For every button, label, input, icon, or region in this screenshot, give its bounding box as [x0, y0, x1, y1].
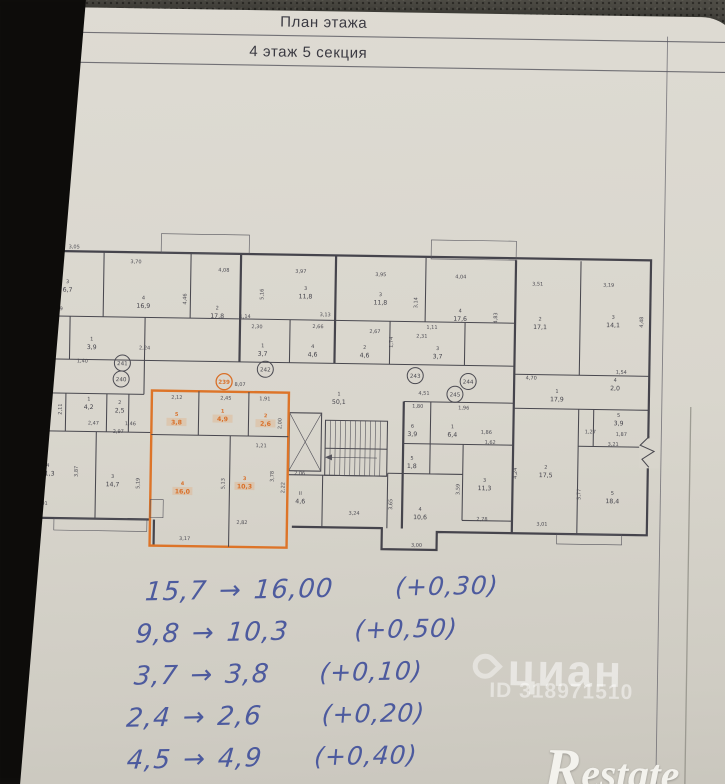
dimension-label: 1,98	[38, 419, 49, 425]
dimension-label: 1,96	[458, 405, 469, 411]
dimension-label: 2,24	[139, 345, 150, 351]
room-number: 3	[483, 478, 486, 484]
room-number: 6	[411, 424, 414, 430]
dimension-label: 1,91	[259, 396, 270, 402]
dimension-label: 3,97	[295, 269, 306, 275]
note-row: 4,5 → 4,9 (+0,40)	[121, 738, 555, 784]
dimension-label: 2,67	[369, 329, 380, 335]
document-border-line	[655, 37, 667, 784]
dimension-label: 2,45	[220, 396, 231, 402]
room-area: 6,7	[63, 287, 73, 294]
room-number: 3	[66, 279, 69, 285]
dimension-label: 1,14	[240, 314, 251, 320]
elevator-cross	[289, 413, 322, 471]
room-number: 3	[612, 315, 615, 321]
room-area: 3,9	[87, 344, 97, 351]
room-number: 4	[142, 295, 145, 301]
dimension-label: 1,61	[41, 368, 52, 374]
room-number: 4	[418, 507, 421, 513]
dimension-label: 3,87	[74, 466, 80, 477]
room-number: 3	[304, 286, 307, 292]
dimension-label: 3,17	[179, 536, 190, 542]
room-area: 3,9	[614, 420, 624, 427]
dimension-label: 3,19	[603, 283, 614, 289]
note-to: 16,00	[253, 574, 335, 606]
dimension-label: 1,80	[412, 404, 423, 410]
room-area: 4,2	[84, 404, 94, 411]
room-number: 2	[264, 413, 268, 419]
room-area: 16,0	[175, 488, 191, 495]
room-area: 2,0	[610, 385, 620, 392]
dimension-label: 4,70	[526, 375, 537, 381]
page-edge-line	[684, 407, 690, 784]
dimension-label: 3,51	[532, 281, 543, 287]
room-area: 17,9	[550, 396, 564, 403]
dimension-label: 1,87	[616, 432, 627, 438]
restate-rest: estate	[581, 751, 680, 784]
room-number: 4	[181, 481, 185, 487]
wall-break-patch	[639, 438, 659, 468]
room-area: 3,9	[407, 431, 417, 438]
dimension-label: 1,27	[585, 429, 596, 435]
room-number: 4	[614, 378, 617, 384]
room-number: 5	[44, 399, 47, 405]
room-area: 11,8	[373, 299, 387, 306]
dimension-label: 1,54	[616, 370, 627, 376]
restate-initial: R	[544, 738, 582, 784]
dimension-label: 2,97	[113, 429, 124, 435]
room-number: 5	[611, 491, 614, 497]
room-number: 1	[87, 397, 90, 403]
dimension-label: 1,86	[481, 430, 492, 436]
room-number: 5	[410, 456, 413, 462]
dimension-label: 8,07	[234, 382, 245, 388]
balcony	[161, 234, 249, 254]
room-number: 2	[539, 317, 542, 323]
room-area: 17,6	[453, 316, 467, 323]
room-area: 4,6	[295, 498, 305, 505]
dimension-label: 2,30	[251, 324, 262, 330]
dimension-label: 1,11	[426, 325, 437, 331]
document-paper: План этажа 4 этаж 5 секция	[0, 6, 725, 784]
apartment-number: 239	[218, 380, 230, 386]
arrow-glyph: →	[189, 660, 214, 690]
note-from: 2,4	[125, 703, 172, 734]
room-number: 4	[311, 344, 314, 350]
closet	[150, 500, 163, 518]
note-delta: (+0,20)	[321, 698, 427, 729]
dimension-label: 3,65	[388, 499, 394, 510]
room-area: 4,9	[217, 416, 228, 423]
room-area: 18,4	[605, 498, 619, 505]
dimension-label: 1,21	[256, 443, 267, 449]
room-number: 5	[175, 412, 179, 418]
arrow-glyph: →	[218, 576, 243, 606]
room-number: 1	[261, 343, 264, 349]
note-from: 3,7	[133, 661, 180, 692]
dimension-label: 3,70	[130, 259, 141, 265]
dimension-label: 4,24	[513, 468, 519, 479]
dimension-label: 4,46	[182, 293, 188, 304]
room-area: 14,7	[106, 481, 120, 488]
dimension-label: 5,77	[576, 489, 582, 500]
dimension-label: 3,01	[37, 501, 48, 507]
arrow-glyph: →	[191, 618, 216, 648]
dimension-label: 2,22	[280, 482, 286, 493]
note-from: 15,7	[144, 576, 208, 607]
note-to: 2,6	[216, 701, 263, 732]
apartment-number: 243	[410, 374, 421, 380]
dimension-label: 2,66	[312, 324, 323, 330]
room-number: 3	[379, 292, 382, 298]
room-area: 4,6	[308, 351, 318, 358]
dimension-label: 3,24	[348, 511, 359, 517]
apartment-number: 244	[463, 380, 474, 386]
apartment-number: 242	[260, 367, 271, 373]
room-area: 1,8	[407, 463, 417, 470]
room-number: 2	[363, 345, 366, 351]
note-delta: (+0,30)	[394, 571, 500, 602]
room-area: 4,6	[360, 352, 370, 359]
arrow-glyph: →	[181, 702, 206, 732]
room-area: 3,8	[171, 419, 182, 426]
dimension-label: 5,16	[259, 289, 265, 300]
dimension-label: 1,74	[389, 337, 395, 348]
room-number: 4	[459, 308, 462, 314]
room-number: 1	[221, 409, 225, 415]
dimension-label: 3,21	[608, 442, 619, 448]
dimension-label: 4,83	[493, 312, 499, 323]
note-delta: (+0,50)	[353, 613, 459, 644]
dimension-label: 4,51	[418, 391, 429, 397]
apartment-number: 245	[450, 392, 461, 398]
apartment-number: 240	[116, 377, 127, 383]
inner-walls-horizontal	[22, 316, 650, 524]
highlighted-apartment-outline	[150, 391, 289, 548]
note-delta: (+0,10)	[318, 656, 424, 687]
note-from: 9,8	[134, 619, 181, 650]
dimension-label: 2,00	[277, 418, 283, 429]
room-number: 2	[118, 400, 121, 406]
room-area: 11,3	[41, 470, 55, 477]
dimension-label: 5,13	[220, 478, 226, 489]
dimension-label: 2,12	[171, 395, 182, 401]
note-from: 4,5	[126, 745, 173, 776]
room-area: 10,3	[237, 483, 252, 490]
room-area: 2,6	[260, 421, 271, 428]
apartment-number: 241	[117, 361, 128, 367]
dimension-label: 3,01	[536, 522, 547, 528]
room-area: 3,9	[41, 406, 51, 413]
restate-watermark: Restate	[544, 737, 680, 784]
stair-arrowhead	[325, 454, 332, 460]
room-number: 1	[555, 389, 558, 395]
dimension-label: 5,19	[135, 478, 141, 489]
room-area: 10,6	[413, 514, 427, 521]
note-to: 3,8	[224, 659, 271, 690]
dimension-label: 3,13	[320, 312, 331, 318]
title-rule-bottom	[0, 61, 725, 73]
note-to: 4,9	[217, 743, 264, 774]
room-number: 2	[216, 306, 219, 312]
dimension-label: 3,14	[413, 297, 419, 308]
room-area: 17,5	[539, 472, 553, 479]
dimension-label: 1,39	[52, 306, 63, 312]
dimension-label: 3,95	[375, 272, 386, 278]
room-number: 3	[436, 346, 439, 352]
room-area: 6,4	[447, 432, 457, 439]
room-number: 2	[50, 340, 53, 346]
arrow-glyph: →	[182, 744, 207, 774]
dimension-label: 1,40	[77, 358, 88, 364]
room-area: 3,3	[47, 347, 57, 354]
room-area: 3,7	[433, 353, 443, 360]
room-area: 14,1	[606, 322, 620, 329]
room-area: 17,8	[210, 313, 224, 320]
room-number: 3	[111, 474, 114, 480]
dimension-label: 1,46	[125, 421, 136, 427]
room-area: 17,1	[533, 324, 547, 331]
highlighted-apartment-inner-walls	[150, 391, 289, 548]
photo-canvas: { "title_block": {"line1": "План этажа",…	[0, 0, 725, 784]
dimension-label: 4,04	[455, 274, 466, 280]
note-to: 10,3	[225, 617, 289, 648]
dimension-label: 3,59	[455, 484, 461, 495]
dimension-label: 1,62	[485, 440, 496, 446]
dimension-label: 2,47	[88, 421, 99, 427]
room-number: 1	[451, 424, 454, 430]
room-number: 2	[544, 465, 547, 471]
dimension-label: 2,78	[476, 517, 487, 523]
dimension-label: 3,05	[69, 244, 80, 250]
room-area: 50,1	[332, 399, 346, 406]
room-number: 4	[46, 463, 49, 469]
room-area: 2,5	[115, 407, 125, 414]
room-number: 1	[337, 391, 340, 397]
dimension-label: 4,08	[218, 268, 229, 274]
dimension-label: 2,31	[416, 334, 427, 340]
room-area: 11,8	[299, 293, 313, 300]
title-rule-top	[10, 31, 725, 42]
room-number: 1	[90, 337, 93, 343]
room-number: 3	[243, 476, 247, 482]
dimension-label: 2,11	[58, 403, 64, 414]
room-area: 11,3	[478, 485, 492, 492]
dimension-label: 2,82	[236, 520, 247, 526]
room-area: 16,9	[136, 303, 150, 310]
plan-labels: 3,053,704,083,973,954,043,513,194,465,16…	[36, 244, 646, 552]
dimension-label: 4,48	[639, 317, 645, 328]
dimension-label: 3,78	[270, 471, 276, 482]
room-number: II	[299, 491, 302, 497]
note-delta: (+0,40)	[313, 740, 419, 771]
dimension-label: 2,06	[294, 471, 305, 477]
cian-listing-id: ID 318971510	[489, 679, 633, 705]
room-area: 3,7	[258, 351, 268, 358]
dimension-label: 3,00	[411, 543, 422, 549]
room-number: 5	[617, 413, 620, 419]
